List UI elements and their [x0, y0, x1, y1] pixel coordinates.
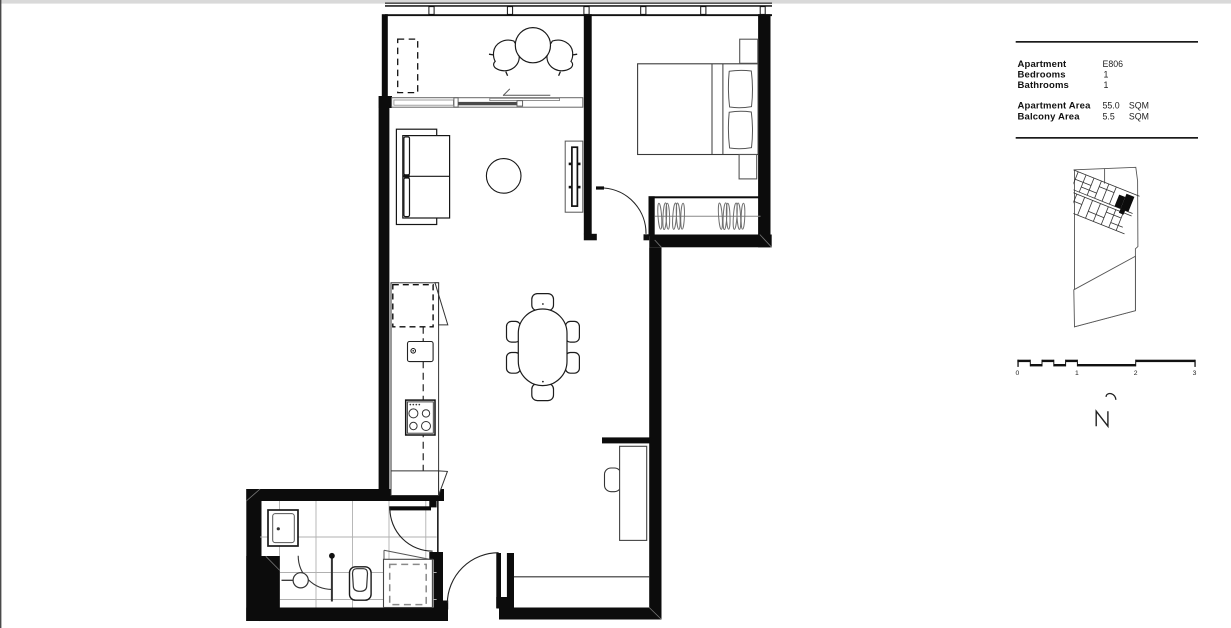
svg-text:0: 0: [1016, 370, 1020, 377]
svg-text:Apartment Area: Apartment Area: [1018, 101, 1092, 112]
svg-text:E806: E806: [1103, 59, 1124, 69]
svg-text:SQM: SQM: [1129, 111, 1149, 121]
svg-text:Bedrooms: Bedrooms: [1018, 70, 1066, 81]
svg-text:55.0: 55.0: [1103, 101, 1120, 111]
svg-text:1: 1: [1075, 370, 1079, 377]
svg-text:Bathrooms: Bathrooms: [1018, 80, 1070, 91]
svg-text:Balcony Area: Balcony Area: [1018, 111, 1081, 122]
svg-text:Apartment: Apartment: [1018, 59, 1068, 70]
svg-text:2: 2: [1134, 370, 1138, 377]
svg-text:1: 1: [1104, 80, 1109, 90]
svg-text:1: 1: [1104, 70, 1109, 80]
svg-text:5.5: 5.5: [1103, 111, 1115, 121]
svg-text:3: 3: [1193, 370, 1197, 377]
svg-text:SQM: SQM: [1129, 101, 1149, 111]
